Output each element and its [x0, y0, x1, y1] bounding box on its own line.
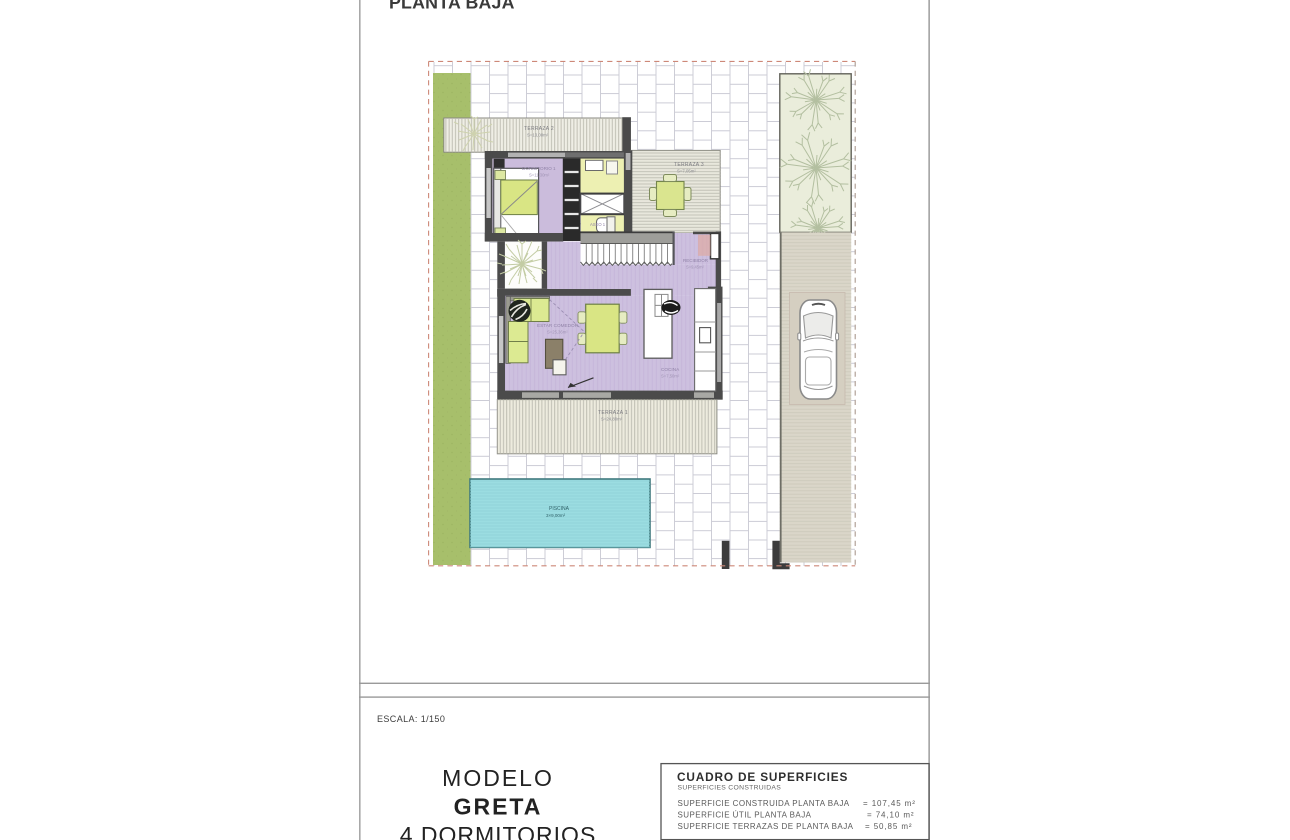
- svg-text:PISCINA: PISCINA: [549, 506, 570, 512]
- svg-text:S=24,80m²: S=24,80m²: [601, 417, 623, 422]
- svg-text:TERRAZA 3: TERRAZA 3: [674, 162, 704, 168]
- svg-text:COCINA: COCINA: [661, 367, 680, 372]
- svg-text:= 74,10 m²: = 74,10 m²: [867, 811, 914, 820]
- svg-text:S=13,00m²: S=13,00m²: [527, 133, 549, 138]
- svg-text:MODELO: MODELO: [442, 765, 554, 791]
- svg-text:S=7,50m²: S=7,50m²: [661, 374, 680, 379]
- svg-text:GRETA: GRETA: [454, 794, 543, 820]
- svg-text:S=25,36m²: S=25,36m²: [547, 330, 568, 335]
- svg-text:= 50,85 m²: = 50,85 m²: [865, 822, 912, 831]
- svg-text:RECIBIDOR: RECIBIDOR: [683, 258, 709, 263]
- svg-text:TERRAZA 1: TERRAZA 1: [598, 410, 628, 416]
- svg-text:4 DORMITORIOS: 4 DORMITORIOS: [400, 822, 597, 840]
- svg-text:ASEO 1: ASEO 1: [590, 222, 606, 227]
- svg-text:ESTAR COMEDOR: ESTAR COMEDOR: [537, 323, 579, 328]
- svg-text:DORMITORIO 1: DORMITORIO 1: [522, 166, 556, 171]
- svg-text:PLANTA BAJA: PLANTA BAJA: [389, 0, 515, 13]
- svg-text:SUPERFICIE TERRAZAS DE PLANTA: SUPERFICIE TERRAZAS DE PLANTA BAJA: [678, 822, 854, 831]
- svg-text:S=7,05m²: S=7,05m²: [677, 169, 696, 174]
- svg-text:ESCALA: 1/150: ESCALA: 1/150: [377, 714, 445, 724]
- svg-text:SUPERFICIE CONSTRUIDA PLANTA B: SUPERFICIE CONSTRUIDA PLANTA BAJA: [678, 799, 850, 808]
- svg-text:3×9,00m²: 3×9,00m²: [546, 513, 566, 518]
- svg-text:= 107,45 m²: = 107,45 m²: [863, 799, 916, 808]
- svg-text:SUPERFICIES CONSTRUIDAS: SUPERFICIES CONSTRUIDAS: [678, 785, 782, 792]
- svg-text:S=11,30m²: S=11,30m²: [529, 173, 550, 178]
- svg-text:TERRAZA 2: TERRAZA 2: [524, 126, 554, 132]
- svg-text:SUPERFICIE ÚTIL PLANTA BAJA: SUPERFICIE ÚTIL PLANTA BAJA: [678, 811, 812, 820]
- svg-text:CUADRO DE SUPERFICIES: CUADRO DE SUPERFICIES: [677, 770, 848, 784]
- svg-text:S=9,45m²: S=9,45m²: [686, 265, 704, 270]
